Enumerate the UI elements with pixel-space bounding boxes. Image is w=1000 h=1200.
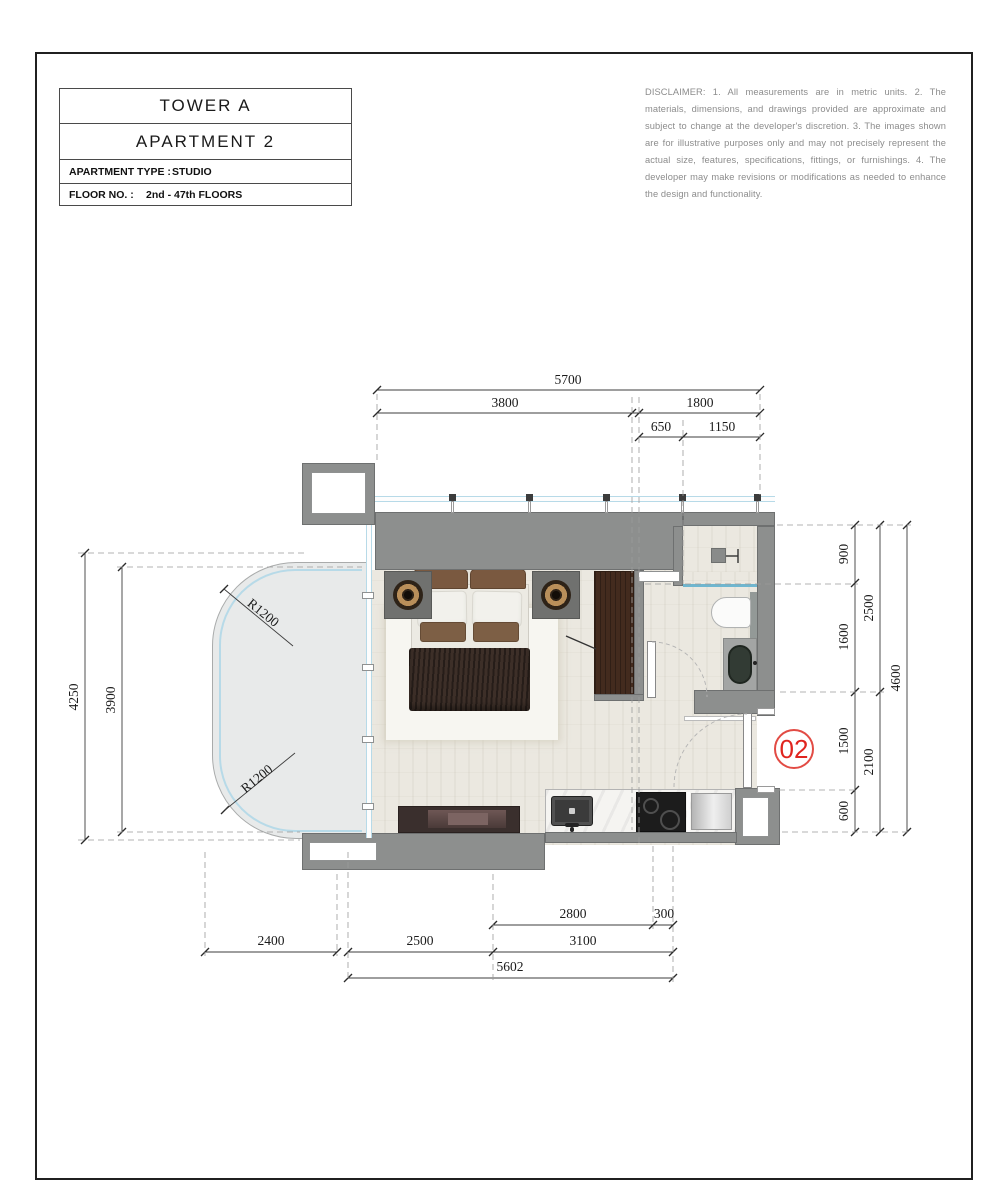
tower-title: TOWER A (60, 89, 351, 124)
balcony-glass-railing (219, 569, 362, 832)
under-counter-appliance (691, 793, 732, 830)
window-post-4 (679, 494, 686, 501)
entry-door-leaf (743, 713, 752, 788)
wall-top-bathroom (683, 512, 775, 526)
dim-top-right: 1800 (687, 395, 714, 411)
floor-no-value: 2nd - 47th FLOORS (146, 189, 242, 201)
apartment-type-row: APARTMENT TYPE : STUDIO (60, 160, 351, 184)
accent-pillow-left (420, 622, 466, 642)
glass-mullion-1 (362, 592, 374, 599)
bed-blanket (409, 648, 530, 711)
window-post-3 (603, 494, 610, 501)
window-post-stem-4 (681, 501, 684, 513)
facade-window-band (375, 496, 775, 502)
window-post-5 (754, 494, 761, 501)
glass-mullion-3 (362, 736, 374, 743)
bottom-left-shaft-niche (309, 842, 377, 861)
entry-jamb-top (757, 708, 775, 715)
tv-screen (448, 813, 488, 825)
wall-wardrobe-back (634, 570, 644, 700)
bathroom-door-leaf (647, 641, 656, 698)
window-post-stem-2 (528, 501, 531, 513)
dim-right-seg-3: 1500 (836, 728, 852, 755)
shower-head (711, 548, 726, 563)
apartment-type-value: STUDIO (172, 166, 212, 178)
apartment-type-label: APARTMENT TYPE : (69, 166, 172, 178)
dim-bottom-mid-2: 2500 (407, 933, 434, 949)
kitchen-sink-drain (569, 808, 575, 814)
accent-pillow-right (473, 622, 519, 642)
dim-bottom-mid-1: 2400 (258, 933, 285, 949)
window-post-stem-5 (756, 501, 759, 513)
glass-mullion-4 (362, 803, 374, 810)
shower-glass-screen (683, 584, 757, 587)
entry-jamb-bottom (757, 786, 775, 793)
balcony-sliding-glass (366, 525, 372, 838)
wall-top-main (375, 512, 683, 570)
wall-niche-shelf (638, 571, 680, 582)
wall-wardrobe-cap (594, 694, 644, 701)
dim-top-sub-left: 650 (651, 419, 671, 435)
dim-right-mid-1: 2500 (861, 595, 877, 622)
dim-left-inner: 3900 (103, 687, 119, 714)
lamp-left (393, 580, 423, 610)
dim-top-sub-right: 1150 (709, 419, 736, 435)
window-post-stem-3 (605, 501, 608, 513)
dim-right-seg-2: 1600 (836, 624, 852, 651)
headboard-cushion-right (470, 569, 526, 589)
unit-number-badge: 02 (774, 729, 814, 769)
column-top-left-niche (311, 472, 366, 514)
dim-top-left: 3800 (492, 395, 519, 411)
wall-right (757, 526, 775, 716)
entry-shaft-niche (742, 797, 769, 837)
dim-bottom-upper-2: 300 (654, 906, 674, 922)
dim-right-mid-2: 2100 (861, 749, 877, 776)
disclaimer-text: DISCLAIMER: 1. All measurements are in m… (645, 84, 946, 203)
toilet (711, 597, 751, 628)
wardrobe (594, 571, 634, 695)
cooktop-burner-large (660, 810, 680, 830)
dim-bottom-mid-3: 3100 (570, 933, 597, 949)
window-post-stem-1 (451, 501, 454, 513)
title-block: TOWER A APARTMENT 2 APARTMENT TYPE : STU… (59, 88, 352, 206)
counter-divider (687, 792, 690, 832)
dim-bottom-upper-1: 2800 (560, 906, 587, 922)
lamp-right (541, 580, 571, 610)
dim-bottom-total: 5602 (497, 959, 524, 975)
dim-left-outer: 4250 (66, 684, 82, 711)
dim-right-seg-1: 900 (836, 544, 852, 564)
cooktop-burner-small (643, 798, 659, 814)
dim-right-total: 4600 (888, 665, 904, 692)
window-post-2 (526, 494, 533, 501)
wall-kitchen-bottom (545, 832, 737, 843)
apartment-title: APARTMENT 2 (60, 124, 351, 160)
dim-top-total: 5700 (555, 372, 582, 388)
window-post-1 (449, 494, 456, 501)
dim-right-seg-4: 600 (836, 801, 852, 821)
floor-no-label: FLOOR NO. : (69, 189, 146, 201)
glass-mullion-2 (362, 664, 374, 671)
floor-no-row: FLOOR NO. : 2nd - 47th FLOORS (60, 184, 351, 205)
vanity-sink (728, 645, 752, 684)
